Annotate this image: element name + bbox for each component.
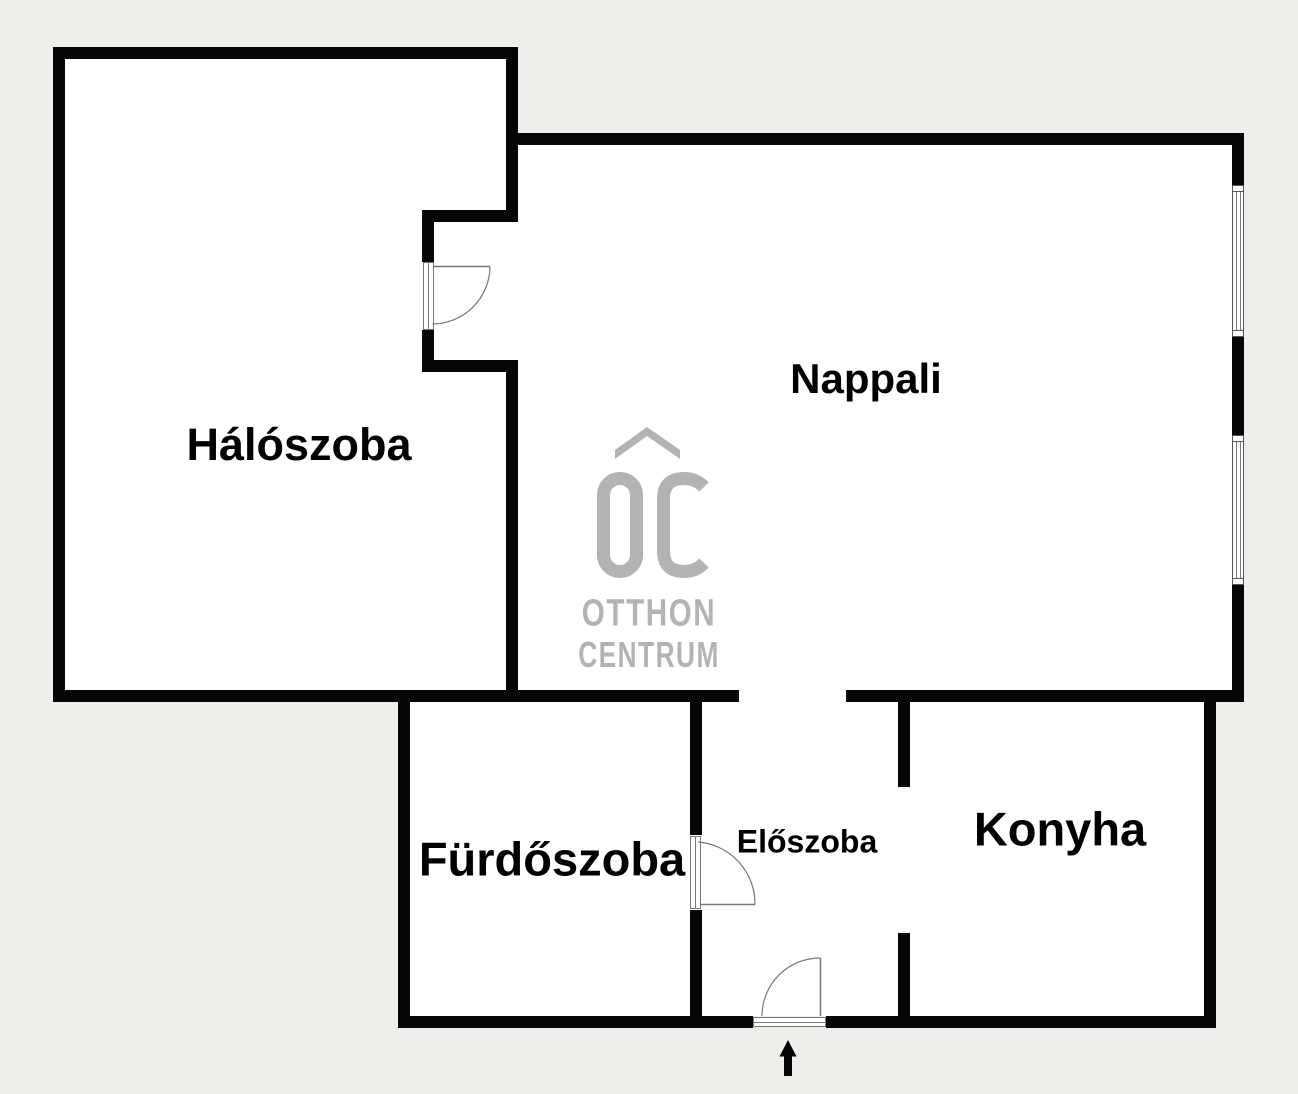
room-label-haloszoba: Hálószoba: [186, 419, 411, 471]
logo-roof-chevron-icon: [615, 427, 680, 459]
door-arc-entrance: [762, 958, 821, 1016]
room-label-eloszoba: Előszoba: [737, 824, 877, 861]
room-label-nappali: Nappali: [790, 355, 942, 403]
floor-plan: OTTHON CENTRUM HálószobaNappaliFürdőszob…: [0, 0, 1298, 1094]
logo-text-centrum: CENTRUM: [578, 634, 720, 676]
logo-text-otthon: OTTHON: [582, 593, 717, 636]
room-label-konyha: Konyha: [974, 802, 1146, 857]
door-arc-haloszoba: [433, 267, 491, 325]
oc-monogram-letter-o: [604, 479, 637, 572]
oc-monogram-letter-c: [664, 479, 705, 572]
plan-overlay: [0, 0, 1298, 1094]
otthon-centrum-logo-mark: [604, 427, 705, 572]
entrance-arrow-icon: [780, 1040, 797, 1076]
room-label-furdoszoba: Fürdőszoba: [419, 832, 685, 887]
